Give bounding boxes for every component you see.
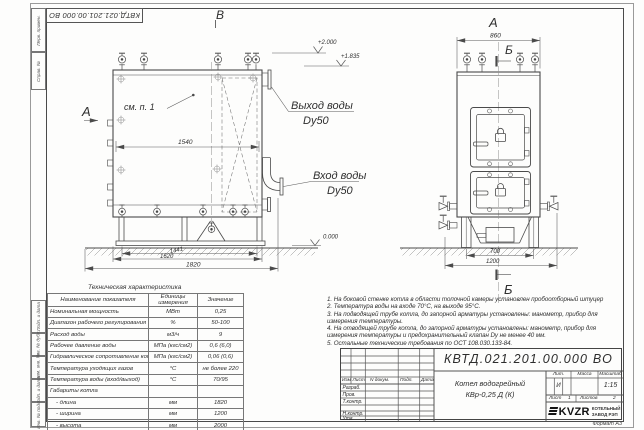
- col-ndoc: N докум.: [370, 378, 389, 383]
- table-row: Габариты котла: [48, 386, 244, 397]
- dim-860: 860: [490, 33, 501, 40]
- drawing-sheet: Перв. примен. Справ. № Подп. и дата Инв.…: [0, 0, 644, 430]
- title-block: КВТД.021.201.00.000 ВО Изм Лист N докум.…: [340, 348, 622, 420]
- role-prov: Пров.: [343, 392, 356, 398]
- hidden-flue-lines: [222, 78, 257, 212]
- role-utv: Утв.: [343, 416, 354, 422]
- section-letter-bottom: Б: [504, 282, 513, 297]
- col-header-value: Значение: [198, 293, 244, 306]
- side-top-valves: [463, 53, 538, 72]
- front-supports: [116, 217, 265, 246]
- sheets-label: Листов: [580, 396, 597, 401]
- front-view-linework: [85, 53, 318, 255]
- upper-furnace-door: [471, 108, 531, 168]
- table-row: Номинальная мощностьМВт0,25: [48, 306, 244, 317]
- table-row: Температура воды (вход/выход)°С70/95: [48, 374, 244, 385]
- col-list: Лист: [353, 378, 365, 383]
- table-row: Диапазон рабочего регулирования%50-100: [48, 317, 244, 328]
- company-name: КОТЕЛЬНЫЙ ЗАВОД РЭП: [592, 406, 621, 416]
- dim-1540: 1540: [178, 139, 193, 146]
- kvzr-logo-icon: [548, 407, 558, 416]
- see-note-label: см. п. 1: [124, 102, 155, 112]
- left-wall-fittings: [108, 120, 114, 206]
- view-letter-v: В: [216, 8, 224, 22]
- col-header-name: Наименование показателя: [48, 293, 149, 306]
- water-inlet-label: Вход воды: [313, 170, 366, 182]
- note-item: 1. На боковой стенке котла в области топ…: [327, 296, 623, 303]
- dim-1200: 1200: [486, 259, 500, 265]
- lug-marks: [117, 73, 258, 175]
- front-top-valves: [118, 53, 259, 70]
- note-item: 3. На подводящей трубе котла, до запорно…: [327, 311, 623, 326]
- water-inlet-dn: Dy50: [327, 185, 354, 197]
- note-item: 4. На отводящей трубе котла, до запорной…: [327, 325, 623, 340]
- elevation-zero: 0.000: [323, 235, 339, 241]
- format-label: Формат А3: [560, 421, 622, 427]
- elevation-mid: +1.835: [341, 54, 360, 60]
- table-row: Гидравлическое сопротивление котлаМПа (к…: [48, 352, 244, 363]
- tech-table: Наименование показателя Единицы измерени…: [47, 293, 244, 430]
- sheets-value: 2: [613, 396, 616, 401]
- col-izm: Изм: [342, 378, 351, 383]
- col-data: Дата: [421, 378, 434, 383]
- product-name-line1: Котел водогрейный: [434, 379, 546, 388]
- water-outlet-dn: Dy50: [303, 115, 330, 127]
- table-row: Температура уходящих газов°Сне более 220: [48, 363, 244, 374]
- sheet-value: 1: [568, 396, 571, 401]
- role-razrab: Разраб.: [343, 385, 361, 391]
- lit-label: Лит.: [546, 372, 571, 377]
- table-row: Рабочее давление водыМПа (кгс/см2)0,6 (6…: [48, 340, 244, 351]
- side-supports: [462, 217, 539, 248]
- company-logo-row: KVZR КОТЕЛЬНЫЙ ЗАВОД РЭП: [547, 403, 622, 420]
- kvzr-logo-text: KVZR: [559, 406, 590, 418]
- water-inlet-elbow: [263, 158, 284, 196]
- view-letter-a-front: А: [81, 104, 91, 119]
- scale-value: 1:15: [598, 382, 623, 389]
- front-bottom-valves: [119, 205, 249, 233]
- bottom-right-stub: [262, 198, 271, 212]
- scale-label: Масштаб: [598, 372, 623, 377]
- technical-notes: 1. На боковой стенке котла в области топ…: [327, 296, 623, 347]
- section-letter-top: Б: [505, 43, 513, 57]
- lit-value: И: [554, 382, 562, 389]
- product-name-line2: КВр-0,25 Д (К): [434, 390, 546, 399]
- col-podp: Подп.: [400, 378, 413, 383]
- tech-table-header: Наименование показателя Единицы измерени…: [48, 293, 244, 306]
- lower-furnace-door: [471, 172, 531, 215]
- elevation-top: +2.000: [318, 40, 337, 46]
- dim-1620: 1620: [160, 254, 174, 260]
- dim-700: 700: [490, 249, 501, 255]
- view-letter-a-side: А: [488, 15, 498, 30]
- role-tkontr: Т.контр.: [343, 399, 363, 405]
- water-outlet-fitting: [262, 70, 271, 89]
- doc-number: КВТД.021.201.00.000 ВО: [435, 352, 622, 366]
- table-row: - ширинамм1200: [48, 409, 244, 420]
- dim-1820: 1820: [186, 262, 201, 269]
- tech-table-title: Техническая характеристика: [88, 284, 181, 291]
- note-item: 5. Остальные технические требования по О…: [327, 340, 623, 347]
- col-header-units: Единицы измерения: [149, 293, 198, 306]
- mass-label: Масса: [571, 372, 598, 377]
- table-row: - длинамм1820: [48, 397, 244, 408]
- sheet-label: Лист: [549, 396, 561, 401]
- water-outlet-label: Выход воды: [291, 100, 353, 112]
- note-item: 2. Температура воды на входе 70°С, на вы…: [327, 303, 623, 310]
- table-row: Расход водым3/ч9: [48, 329, 244, 340]
- table-row: - высотамм2000: [48, 420, 244, 430]
